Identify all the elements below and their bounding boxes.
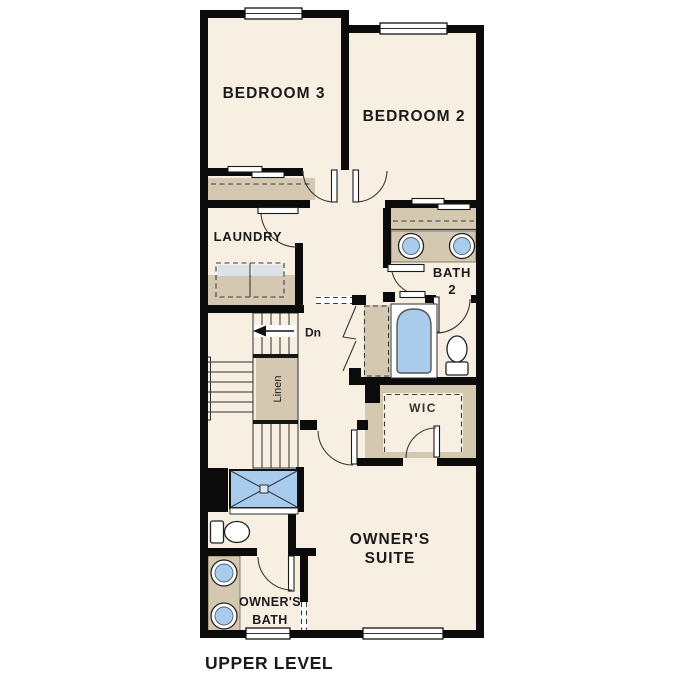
bath2-toilet-tank: [446, 362, 468, 375]
owners-toilet-tank: [211, 521, 224, 543]
bedroom3-closet-shelf: [208, 178, 315, 200]
wall-wic-corner: [365, 385, 380, 403]
owners-sink-bottom-basin: [215, 607, 233, 625]
owners-shower-drain: [260, 485, 268, 493]
floorplan-svg: BEDROOM 3 BEDROOM 2 LAUNDRY BATH 2 Dn Li…: [0, 0, 687, 687]
wall-wic-south-b: [437, 458, 484, 466]
wic-door-leaf: [434, 426, 440, 457]
owners-sink-top-basin: [215, 564, 233, 582]
wall-owners-bath-north-a: [200, 548, 257, 556]
room-label-bath2-line2: 2: [448, 282, 455, 297]
floorplan-page: BEDROOM 3 BEDROOM 2 LAUNDRY BATH 2 Dn Li…: [0, 0, 687, 687]
wall-laundry-south: [200, 305, 304, 313]
bedroom3-door-leaf: [332, 170, 338, 202]
bedroom2-closet-shelf: [391, 208, 476, 229]
bath2-sink-right-basin: [454, 238, 471, 255]
laundry-counter: [208, 275, 295, 305]
owners-shower-curb: [230, 508, 298, 514]
bedroom2-closet-bypass-b: [438, 204, 470, 210]
room-label-owners-suite-line2: SUITE: [365, 550, 416, 567]
wall-right-exterior: [476, 25, 484, 638]
dryer-top: [252, 265, 284, 276]
linen-closet-label: Linen: [272, 376, 284, 403]
room-label-owners-suite-line1: OWNER'S: [350, 531, 430, 548]
wall-owners-bath-east: [300, 556, 308, 602]
hall-linen-shelf: [364, 305, 390, 377]
owners-bath-door-leaf: [289, 556, 295, 591]
bathtub: [397, 309, 431, 373]
wall-laundry-east: [295, 243, 303, 313]
wall-suite-entry-b: [357, 420, 368, 430]
bath2-sink-left-basin: [403, 238, 420, 255]
linen-closet-top-edge: [253, 354, 298, 358]
linen-closet-bottom-edge: [253, 420, 298, 424]
room-label-laundry: LAUNDRY: [214, 229, 283, 244]
stairs-down-label: Dn: [305, 326, 321, 340]
room-label-wic: WIC: [409, 401, 437, 415]
bedroom3-closet-bypass-b: [252, 172, 284, 178]
bath2-toilet-bowl: [447, 336, 467, 362]
room-label-owners-bath-line2: BATH: [252, 613, 287, 627]
washer-top: [218, 265, 250, 276]
room-label-bedroom2: BEDROOM 2: [363, 108, 466, 125]
room-label-owners-bath-line1: OWNER'S: [239, 595, 301, 609]
floorplan-title: UPPER LEVEL: [205, 653, 333, 673]
wall-wic-south-a: [357, 458, 403, 466]
bedroom2-door-leaf: [353, 170, 359, 202]
owners-toilet-bowl: [225, 522, 250, 543]
wall-stub-bath2: [383, 292, 395, 302]
tub-room-threshold: [400, 292, 425, 298]
wall-chase: [208, 468, 228, 512]
wall-suite-entry-a: [300, 420, 317, 430]
bath2-door-leaf: [388, 265, 424, 272]
wall-stub-hall: [352, 295, 366, 305]
wall-closet3-south: [200, 200, 310, 208]
room-label-bedroom3: BEDROOM 3: [223, 85, 326, 102]
wall-owners-bath-north-b: [291, 548, 316, 556]
bedroom2-closet-bypass-a: [412, 199, 444, 205]
wall-left-exterior: [200, 10, 208, 638]
bedroom3-closet-bypass-a: [228, 167, 262, 173]
wall-bath2-west: [383, 208, 391, 268]
wall-bedroom-divider: [341, 10, 349, 170]
wall-tubroom-north-b: [471, 295, 484, 303]
owners-suite-door-leaf: [352, 430, 358, 464]
room-label-bath2-line1: BATH: [433, 265, 471, 280]
laundry-door-leaf: [258, 208, 298, 214]
